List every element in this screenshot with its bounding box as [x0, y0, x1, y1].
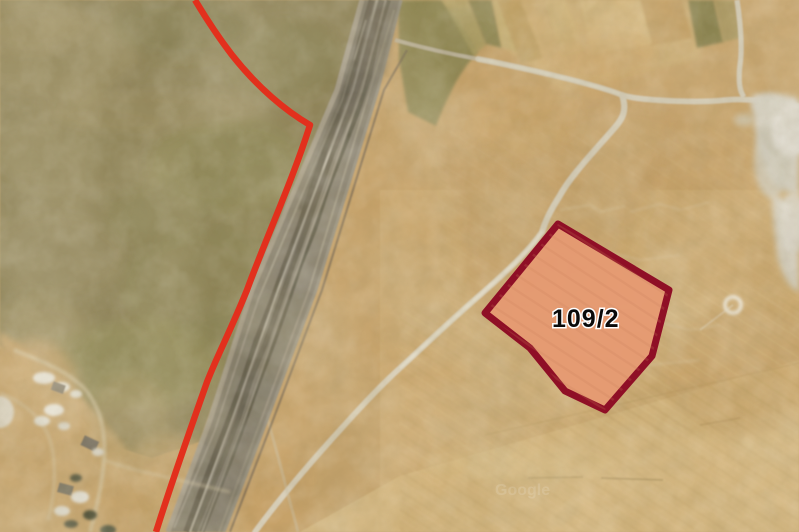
- svg-text:Google: Google: [495, 482, 550, 499]
- svg-text:109/2: 109/2: [552, 305, 620, 333]
